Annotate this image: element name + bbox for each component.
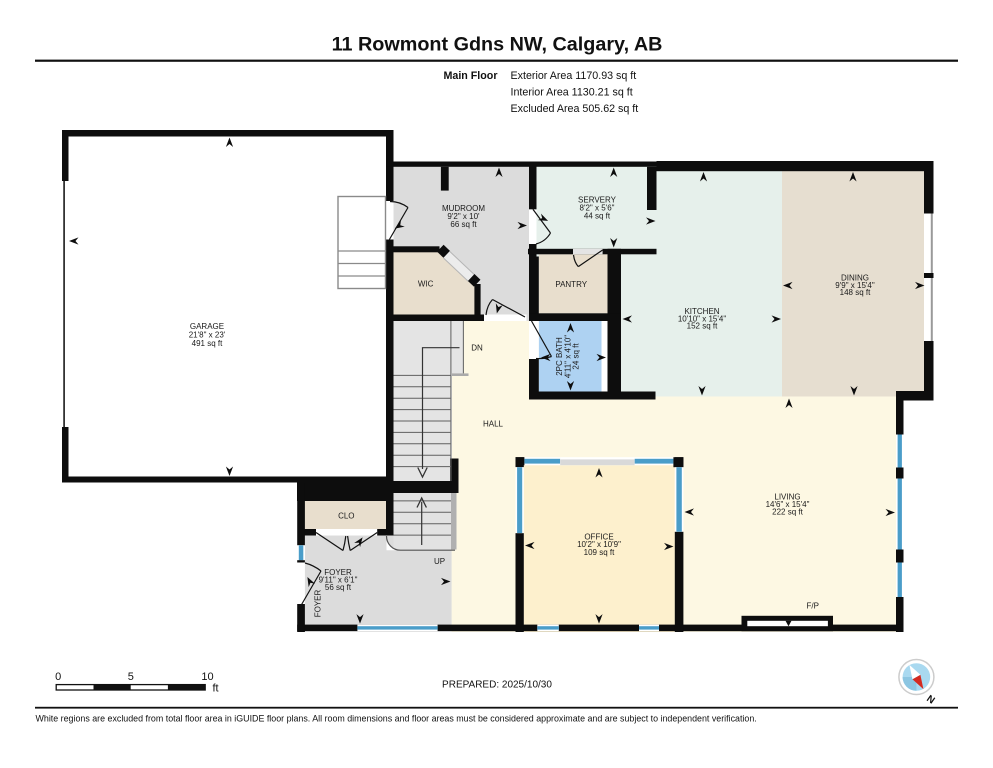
svg-text:56 sq ft: 56 sq ft: [325, 583, 352, 592]
svg-text:152 sq ft: 152 sq ft: [687, 322, 718, 331]
svg-text:10: 10: [201, 671, 213, 683]
svg-text:Interior Area 1130.21 sq ft: Interior Area 1130.21 sq ft: [511, 87, 633, 99]
svg-text:109 sq ft: 109 sq ft: [584, 548, 615, 557]
svg-text:Exterior Area 1170.93 sq ft: Exterior Area 1170.93 sq ft: [511, 70, 637, 82]
svg-text:HALL: HALL: [483, 420, 504, 429]
svg-text:44 sq ft: 44 sq ft: [584, 212, 611, 221]
svg-text:222 sq ft: 222 sq ft: [772, 508, 803, 517]
svg-text:F/P: F/P: [806, 602, 818, 611]
svg-text:White regions are excluded fro: White regions are excluded from total fl…: [36, 713, 757, 723]
svg-text:PANTRY: PANTRY: [555, 280, 587, 289]
svg-text:491 sq ft: 491 sq ft: [192, 339, 223, 348]
svg-text:DN: DN: [471, 344, 483, 353]
svg-text:WIC: WIC: [418, 279, 434, 288]
svg-text:FOYER: FOYER: [314, 590, 323, 618]
svg-text:0: 0: [55, 671, 61, 683]
svg-text:UP: UP: [434, 557, 445, 566]
svg-text:CLO: CLO: [338, 512, 354, 521]
svg-text:5: 5: [128, 671, 134, 683]
svg-text:Excluded Area 505.62 sq ft: Excluded Area 505.62 sq ft: [511, 103, 639, 115]
svg-text:11 Rowmont Gdns NW, Calgary, A: 11 Rowmont Gdns NW, Calgary, AB: [332, 34, 663, 56]
svg-text:148 sq ft: 148 sq ft: [840, 288, 871, 297]
svg-text:ft: ft: [213, 683, 219, 695]
svg-text:66 sq ft: 66 sq ft: [450, 220, 477, 229]
svg-text:Main Floor: Main Floor: [443, 70, 497, 82]
svg-text:24 sq ft: 24 sq ft: [572, 343, 581, 370]
svg-text:PREPARED: 2025/10/30: PREPARED: 2025/10/30: [442, 680, 552, 691]
